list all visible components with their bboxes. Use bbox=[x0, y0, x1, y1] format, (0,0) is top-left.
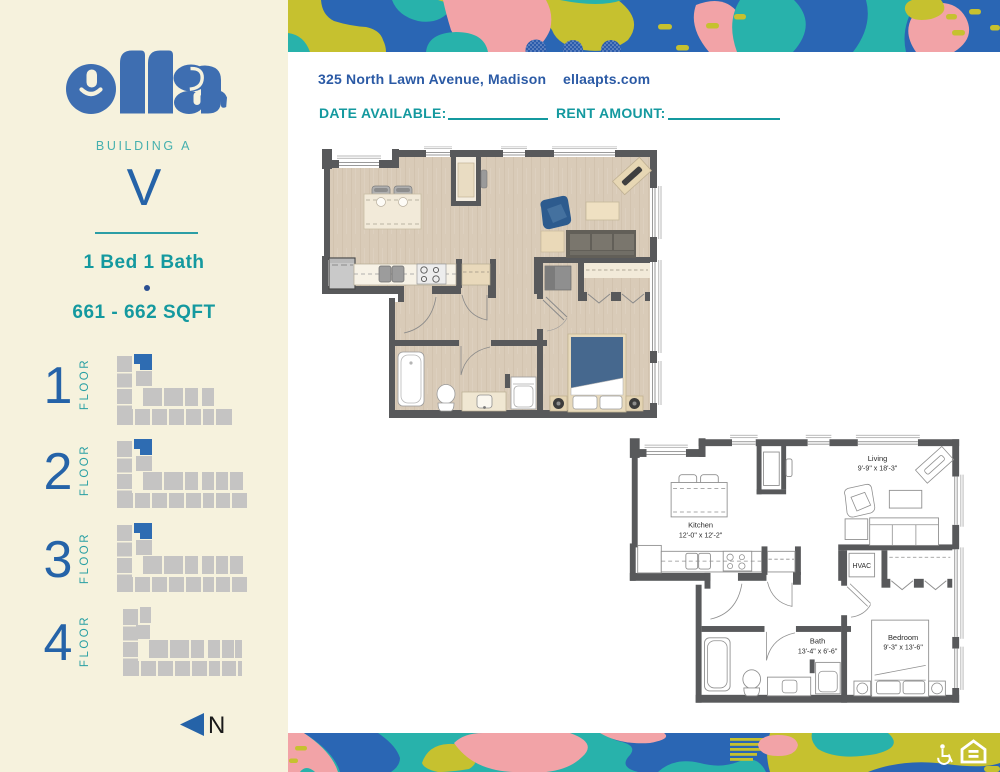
svg-text:Living: Living bbox=[868, 454, 888, 463]
svg-text:13'-4" x 6'-6": 13'-4" x 6'-6" bbox=[798, 649, 838, 656]
svg-text:HVAC: HVAC bbox=[853, 563, 872, 570]
svg-text:Bedroom: Bedroom bbox=[888, 633, 918, 642]
svg-text:9'-3" x 13'-6": 9'-3" x 13'-6" bbox=[883, 645, 923, 652]
svg-text:9'-9" x 18'-3": 9'-9" x 18'-3" bbox=[858, 466, 898, 473]
svg-text:N: N bbox=[208, 712, 225, 738]
svg-text:12'-0" x 12'-2": 12'-0" x 12'-2" bbox=[679, 533, 723, 540]
svg-text:Kitchen: Kitchen bbox=[688, 521, 713, 530]
svg-text:Bath: Bath bbox=[810, 637, 825, 646]
